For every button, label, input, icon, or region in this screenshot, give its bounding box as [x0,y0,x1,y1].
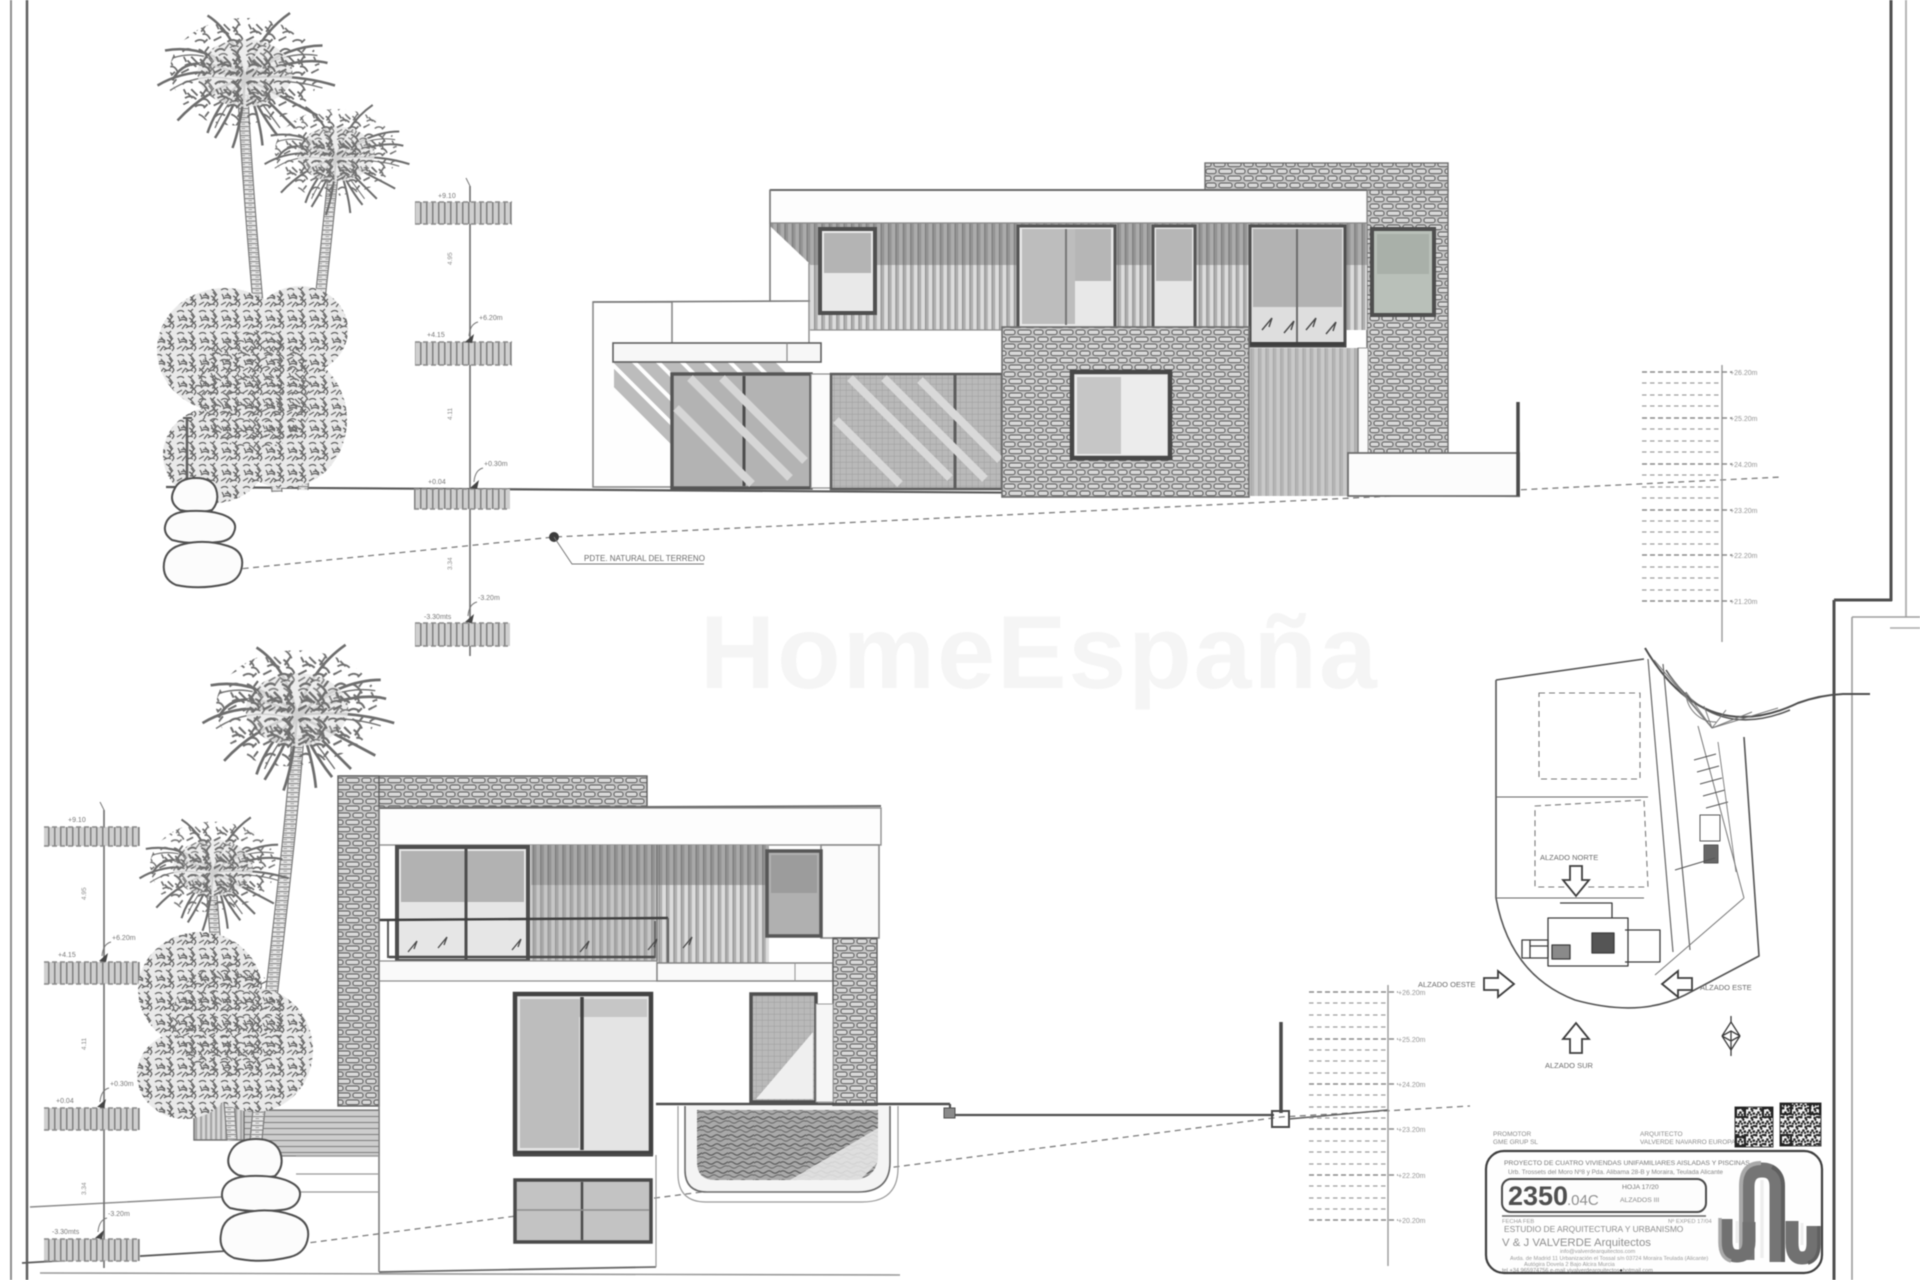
svg-text:GME GRUP SL: GME GRUP SL [1493,1139,1538,1146]
svg-text:PROYECTO DE CUATRO VIVIENDAS U: PROYECTO DE CUATRO VIVIENDAS UNIFAMILIAR… [1504,1160,1750,1167]
svg-text:ALZADO SUR: ALZADO SUR [1545,1061,1594,1070]
svg-text:+9.10: +9.10 [438,193,456,200]
svg-text:+0.04: +0.04 [428,479,446,486]
svg-text:+22.20m: +22.20m [1398,1173,1426,1180]
svg-text:HOJA 17/20: HOJA 17/20 [1622,1184,1659,1191]
svg-text:4.11: 4.11 [447,407,454,420]
svg-text:+25.20m: +25.20m [1398,1037,1426,1044]
svg-text:+0.04: +0.04 [56,1098,74,1105]
svg-text:+4.15: +4.15 [427,332,445,339]
svg-text:ARQUITECTO: ARQUITECTO [1640,1131,1683,1138]
svg-text:-3.20m: -3.20m [108,1211,130,1218]
svg-text:-3.30mts: -3.30mts [52,1229,80,1236]
svg-text:4.11: 4.11 [81,1037,88,1050]
svg-text:HomeEspaña: HomeEspaña [700,595,1379,711]
svg-text:+26.20m: +26.20m [1398,990,1426,997]
svg-text:info@valverdearquitectos.com: info@valverdearquitectos.com [1560,1249,1636,1255]
svg-text:ALZADOS III: ALZADOS III [1620,1197,1659,1204]
svg-text:+22.20m: +22.20m [1730,553,1758,560]
svg-text:VALVERDE NAVARRO EUROPA: VALVERDE NAVARRO EUROPA [1640,1139,1736,1146]
svg-text:-3.30mts: -3.30mts [424,614,452,621]
svg-text:PDTE. NATURAL DEL TERRENO: PDTE. NATURAL DEL TERRENO [584,554,705,563]
svg-text:+23.20m: +23.20m [1730,508,1758,515]
svg-text:tel +34 965974756 e-mail vjv: tel +34 965974756 e-mail vjvalverdearqui… [1502,1268,1653,1274]
svg-text:+6.20m: +6.20m [112,935,136,942]
svg-text:3.34: 3.34 [81,1182,88,1195]
svg-text:V & J VALVERDE Arquitectos: V & J VALVERDE Arquitectos [1502,1237,1651,1249]
svg-text:4.95: 4.95 [81,887,88,900]
svg-text:-3.20m: -3.20m [478,595,500,602]
svg-text:+26.20m: +26.20m [1730,370,1758,377]
svg-text:+4.15: +4.15 [58,952,76,959]
svg-text:Urb. Trossets del Moro Nº8 y P: Urb. Trossets del Moro Nº8 y Pda. Alibam… [1508,1169,1723,1176]
svg-text:.04C: .04C [1567,1192,1599,1209]
svg-text:3.34: 3.34 [447,557,454,570]
svg-text:+23.20m: +23.20m [1398,1127,1426,1134]
svg-text:+24.20m: +24.20m [1398,1082,1426,1089]
svg-text:+20.20m: +20.20m [1398,1218,1426,1225]
svg-text:2350: 2350 [1508,1181,1568,1211]
svg-text:ESTUDIO DE ARQUITECTURA Y URBA: ESTUDIO DE ARQUITECTURA Y URBANISMO [1504,1224,1684,1234]
svg-text:PROMOTOR: PROMOTOR [1493,1131,1531,1138]
svg-text:4.95: 4.95 [447,252,454,265]
svg-text:+0.30m: +0.30m [484,461,508,468]
svg-text:ALZADO ESTE: ALZADO ESTE [1700,983,1752,992]
svg-text:+25.20m: +25.20m [1730,416,1758,423]
svg-text:+9.10: +9.10 [68,817,86,824]
svg-text:+0.30m: +0.30m [110,1081,134,1088]
svg-text:ALZADO OESTE: ALZADO OESTE [1418,980,1476,989]
svg-text:+6.20m: +6.20m [479,315,503,322]
svg-text:+24.20m: +24.20m [1730,462,1758,469]
svg-text:ALZADO NORTE: ALZADO NORTE [1540,853,1598,862]
svg-text:+21.20m: +21.20m [1730,599,1758,606]
